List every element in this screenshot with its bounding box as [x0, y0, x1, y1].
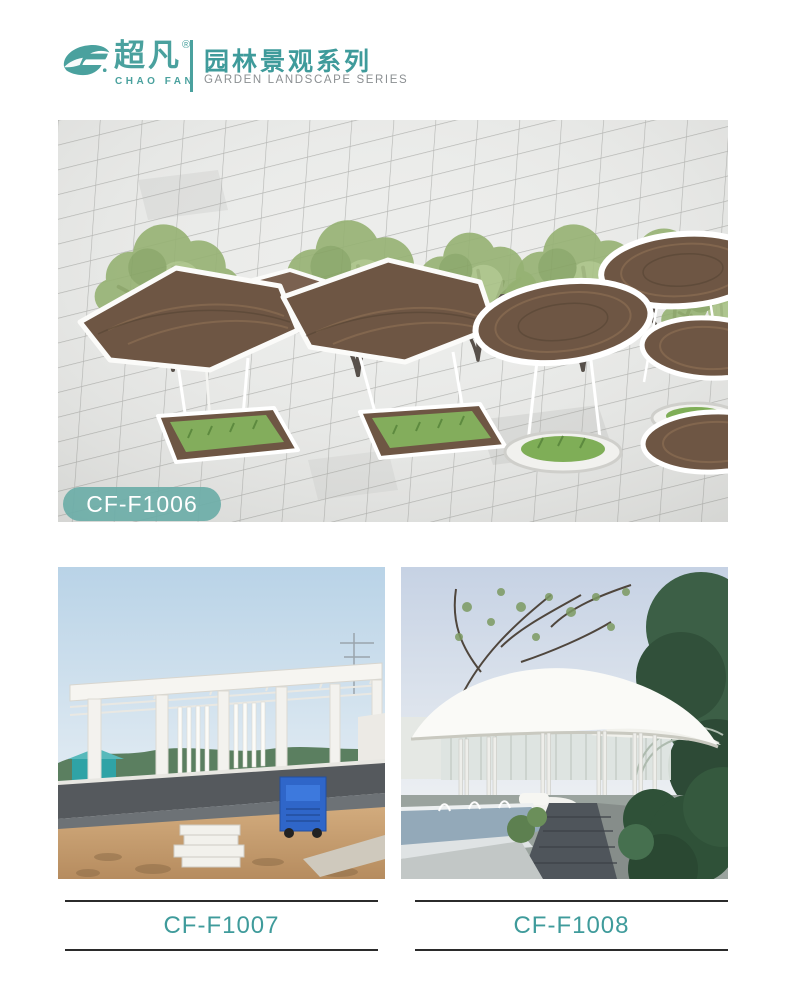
product-code-badge: CF-F1006: [63, 487, 221, 521]
brand-name-cn: 超凡®: [114, 40, 193, 71]
header-divider: [190, 40, 193, 92]
catalog-page: 超凡® CHAO FAN 园林景观系列 GARDEN LANDSCAPE SER…: [0, 0, 796, 1000]
product-image-cf-f1008: [401, 567, 728, 879]
product-code-caption-right: CF-F1008: [415, 900, 728, 951]
product-image-cf-f1007: [58, 567, 385, 879]
series-title-cn: 园林景观系列: [204, 42, 372, 78]
blue-machine: [280, 777, 326, 838]
brand-name-cn-text: 超凡: [114, 38, 182, 73]
product-image-featured: [58, 120, 728, 522]
chaofan-swoosh-icon: [60, 38, 112, 94]
brand-name-en: CHAO FAN: [115, 76, 195, 87]
product-code-caption-left: CF-F1007: [65, 900, 378, 951]
stone-stack: [174, 825, 244, 867]
series-title-en: GARDEN LANDSCAPE SERIES: [204, 74, 408, 86]
